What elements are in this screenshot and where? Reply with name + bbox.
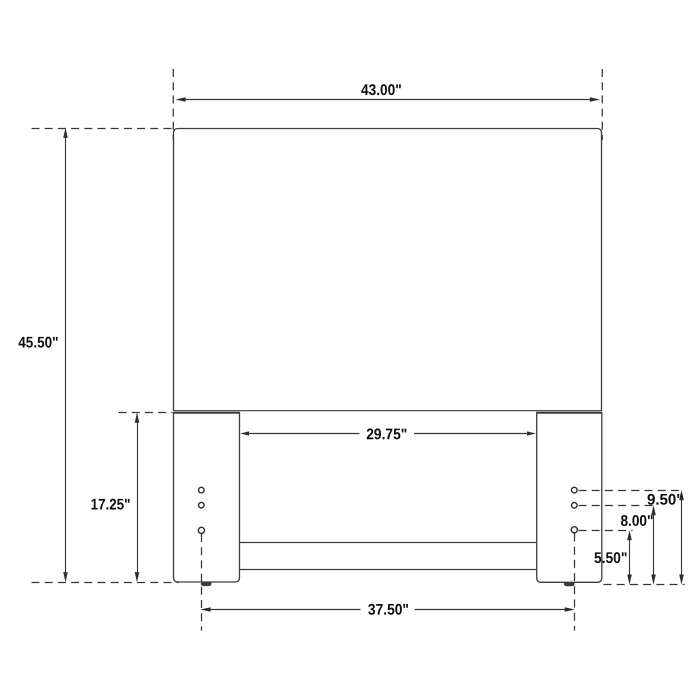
svg-text:37.50": 37.50" xyxy=(368,602,409,619)
svg-text:29.75": 29.75" xyxy=(366,426,407,443)
svg-text:45.50": 45.50" xyxy=(18,334,58,351)
svg-text:17.25": 17.25" xyxy=(91,496,131,513)
svg-text:9.50": 9.50" xyxy=(647,492,684,509)
svg-text:43.00": 43.00" xyxy=(361,82,402,99)
svg-text:8.00": 8.00" xyxy=(620,513,653,530)
svg-text:5.50": 5.50" xyxy=(594,550,628,567)
